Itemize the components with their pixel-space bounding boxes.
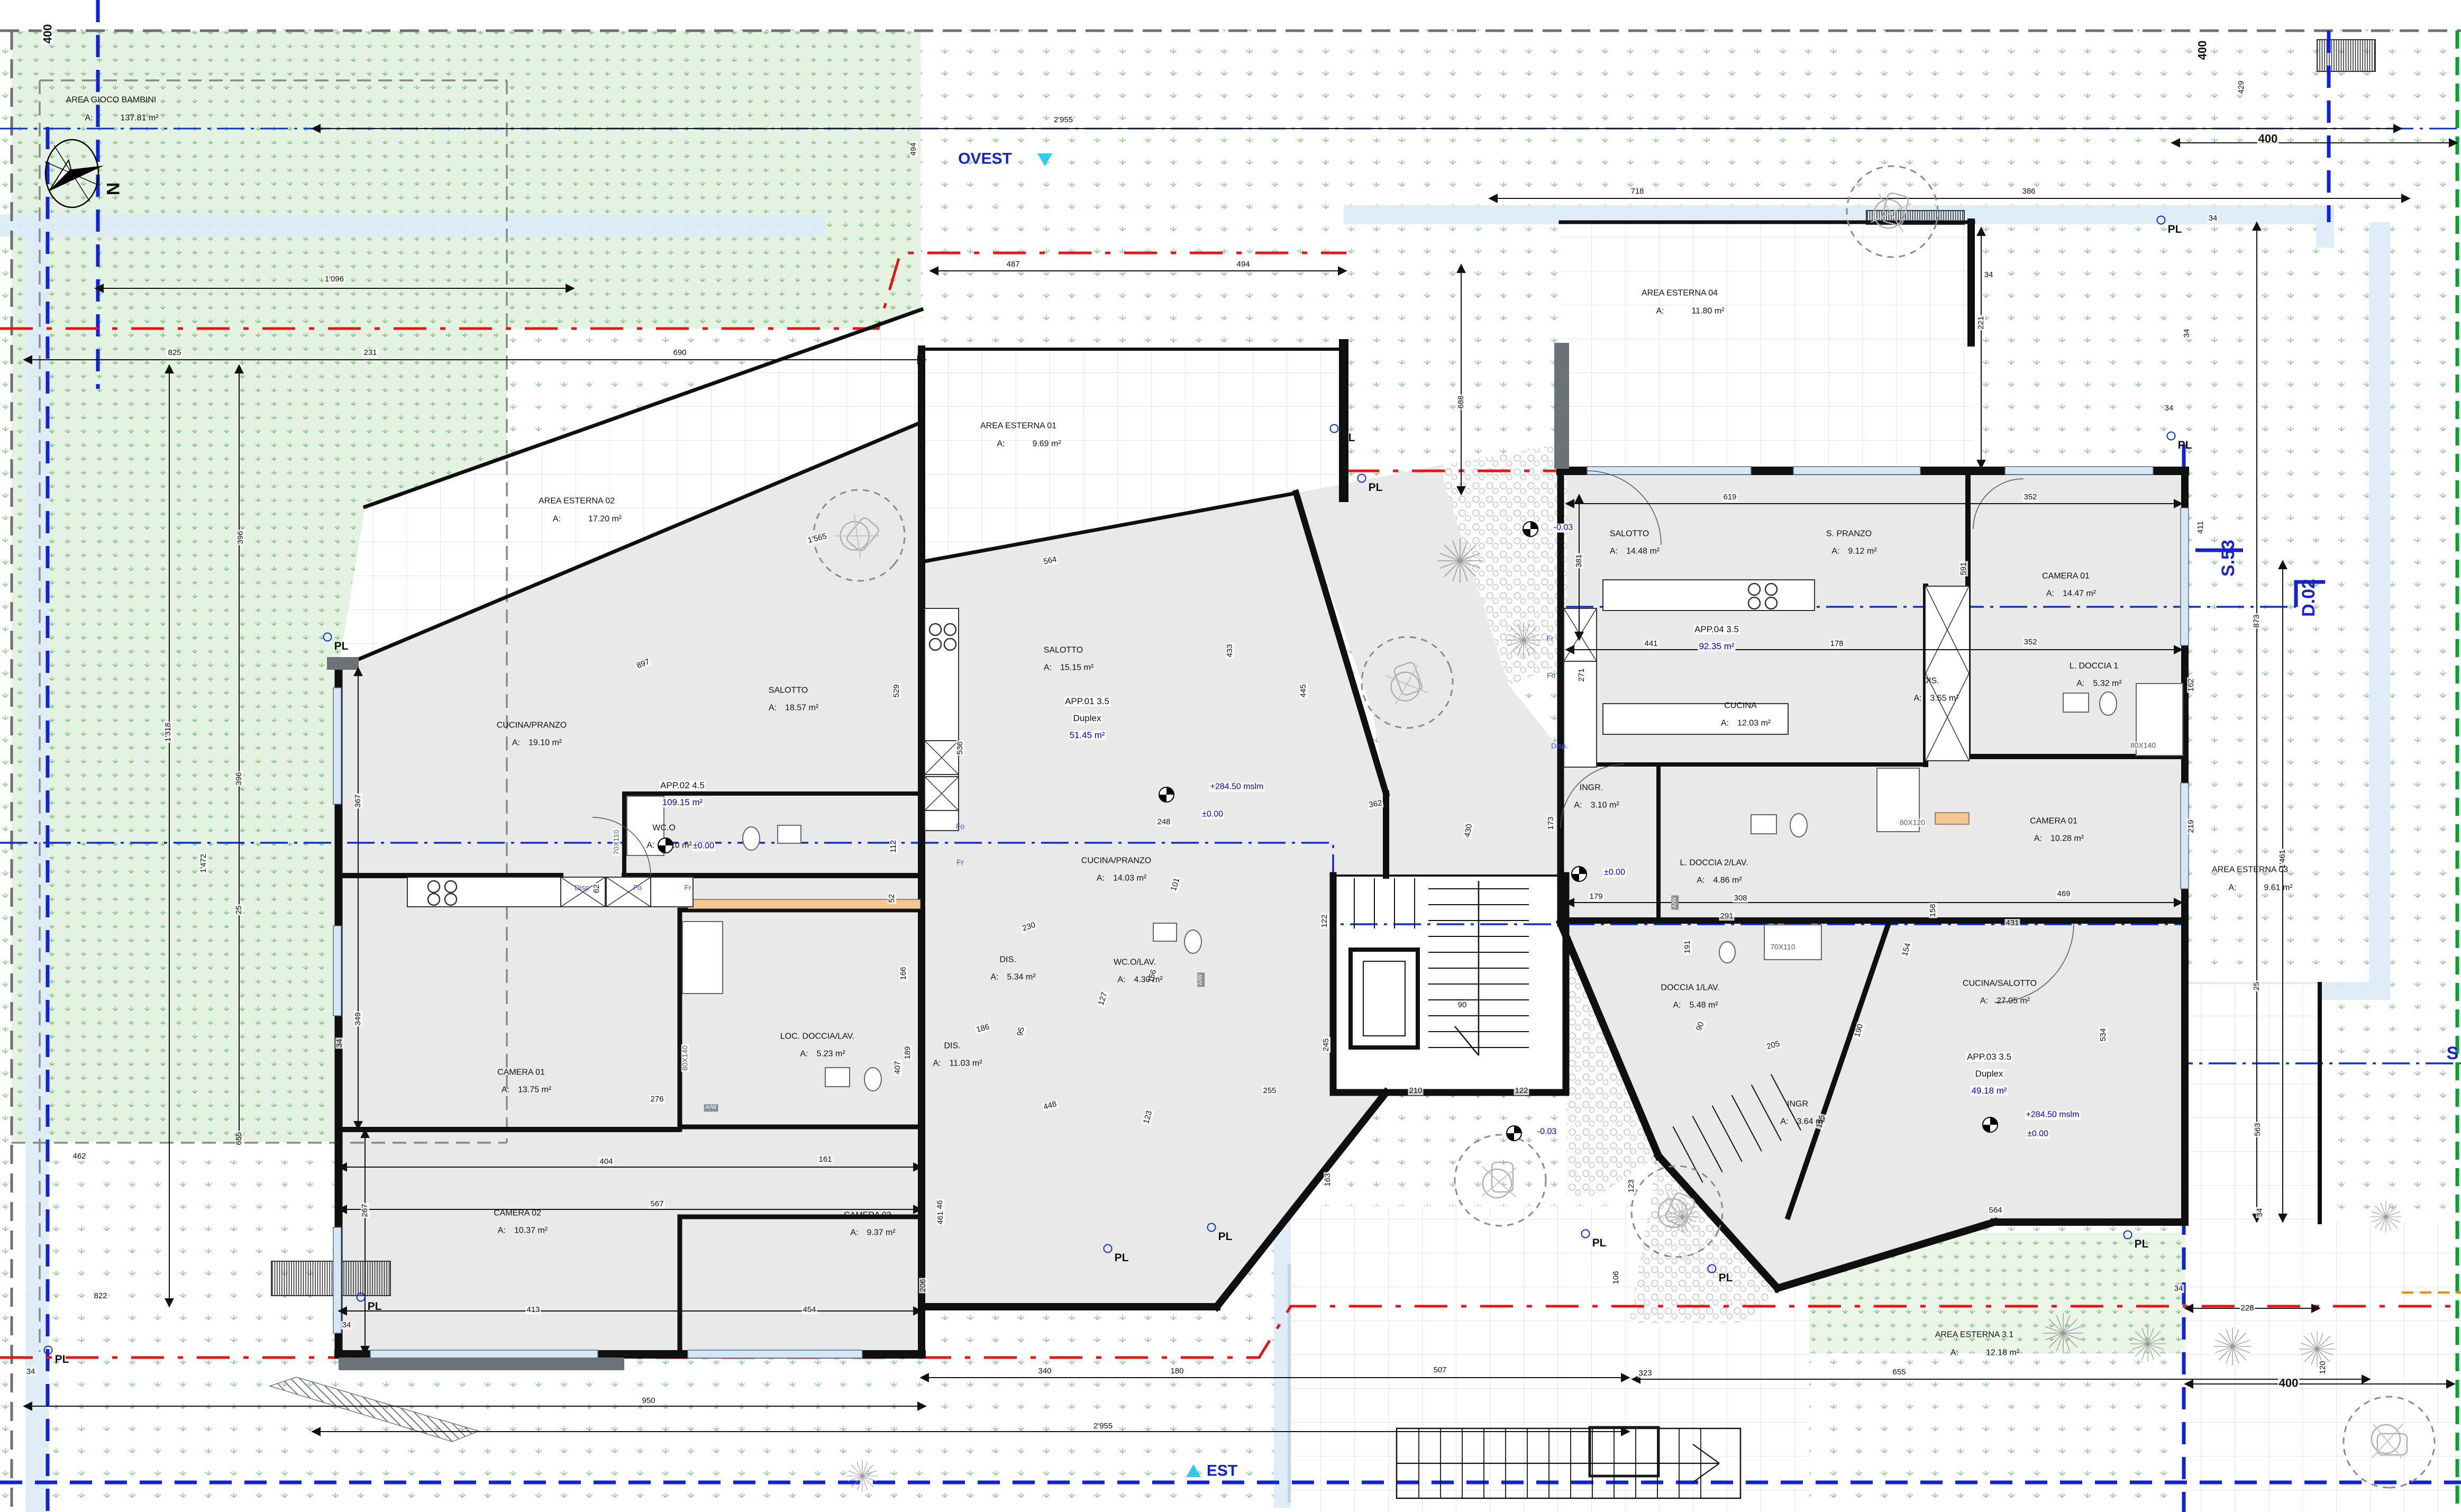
room-name: INGR.: [1579, 784, 1604, 793]
cardinal-east-label: EST: [1206, 1462, 1238, 1479]
room-area: A:5.34 m²: [989, 973, 1036, 982]
dim-label: 413: [525, 1306, 541, 1314]
dim-label: 178: [1829, 640, 1844, 648]
appliance-label: Disp.: [1550, 742, 1569, 750]
site-area-value: A:17.20 m²: [552, 515, 623, 524]
room-area: A:4.30 m²: [1116, 976, 1163, 985]
room-area: A:19.10 m²: [511, 739, 563, 748]
room-name: SALOTTO: [1609, 530, 1650, 539]
apartment-name: APP.02 4.5: [659, 781, 706, 790]
dim-label: 352: [2022, 638, 2038, 646]
apartment-type: Duplex: [1974, 1069, 2004, 1079]
dim-label: 619: [1722, 493, 1737, 502]
appliance-label: Fo: [1546, 672, 1556, 680]
dim-label: 563: [2254, 1122, 2262, 1137]
section-marker-label: S: [2446, 1044, 2460, 1063]
appliance-label: Fr: [683, 884, 692, 892]
dim-label: 255: [1262, 1087, 1277, 1095]
dim-label: 173: [1547, 815, 1555, 831]
dim-label: 323: [1637, 1369, 1653, 1378]
dim-label: 469: [2056, 890, 2071, 898]
property-line-marker: PL: [1368, 482, 1384, 494]
dim-label: 34: [25, 1368, 37, 1376]
level-symbol: [1506, 1125, 1522, 1141]
fixture-size-label: 80X120: [1899, 819, 1926, 827]
room-area: A:14.03 m²: [1096, 875, 1147, 883]
room-name: L. DOCCIA 2/LAV.: [1679, 859, 1749, 868]
fixture-size-label: 70X110: [1769, 943, 1796, 951]
dim-label: 340: [1037, 1367, 1052, 1376]
dim-label: 591: [1959, 561, 1968, 576]
dim-label: 529: [892, 683, 901, 698]
fixture-size-label: 70X110: [613, 828, 621, 855]
dim-label: 400: [2257, 132, 2279, 144]
site-area-value: A:12.18 m²: [1949, 1349, 2020, 1358]
property-line-point: [2167, 432, 2176, 441]
dim-label: 25: [235, 905, 243, 916]
dim-label: 718: [1629, 187, 1645, 196]
site-area-name: AREA ESTERNA 04: [1640, 289, 1719, 298]
dim-label: 221: [1977, 315, 1985, 330]
appliance-label: Fo: [955, 823, 965, 831]
room-name: DIS.: [1921, 677, 1940, 686]
property-line-point: [1207, 1223, 1216, 1232]
dim-label: 34: [2256, 1207, 2264, 1218]
room-name: CAMERA 03: [843, 1212, 892, 1220]
level-label: +284.50 mslm: [2025, 1111, 2081, 1120]
room-area: A:14.48 m²: [1609, 548, 1661, 557]
dim-label: 34: [2164, 404, 2175, 413]
dim-label: 1'318: [164, 722, 172, 743]
dim-label: 163: [1324, 1172, 1332, 1187]
room-name: LOC. DOCCIA/LAV.: [779, 1033, 856, 1042]
level-label: +284.50 mslm: [1209, 783, 1265, 792]
dim-label: 494: [909, 141, 918, 157]
site-area-name: AREA ESTERNA 02: [537, 497, 616, 506]
dim-label: 487: [1005, 260, 1020, 269]
dim-label: 112: [889, 839, 898, 854]
dim-label: 206: [919, 1278, 927, 1293]
dim-label: 433: [1226, 643, 1234, 658]
dim-label: 396: [235, 771, 243, 786]
dim-label: 352: [2022, 493, 2038, 502]
room-name: CUCINA/PRANZO: [1080, 857, 1152, 866]
apartment-area: 92.35 m²: [1698, 642, 1735, 651]
apartment-area: 51.45 m²: [1068, 731, 1106, 740]
room-name: DIS.: [998, 956, 1017, 965]
dim-label: 950: [641, 1397, 656, 1405]
room-name: SALOTTO: [768, 687, 809, 696]
cardinal-west-label: OVEST: [957, 150, 1013, 167]
washer-dryer-label: A/W: [704, 1104, 718, 1112]
room-name: S. PRANZO: [1825, 530, 1873, 539]
dim-label: 25: [2253, 981, 2261, 992]
dim-label: 191: [1683, 939, 1692, 954]
dim-label: 1'096: [324, 275, 345, 284]
property-line-point: [1708, 1264, 1717, 1273]
apartment-type: Duplex: [1072, 714, 1102, 723]
room-area: A:15.15 m²: [1043, 664, 1095, 673]
dim-label: 219: [2187, 818, 2195, 834]
room-name: CAMERA 02: [493, 1209, 542, 1218]
dim-label: 461: [936, 1210, 945, 1225]
dim-label: 2'955: [1092, 1422, 1114, 1431]
dim-label: 267: [361, 1203, 369, 1218]
room-name: CAMERA 01: [2041, 572, 2091, 581]
dim-label: 34: [1983, 271, 1994, 279]
dim-label: 179: [1588, 892, 1603, 901]
level-label: -0.03: [1536, 1128, 1557, 1137]
dim-label: 228: [2239, 1304, 2255, 1313]
dim-label: 120: [2319, 1360, 2327, 1375]
room-area: A:5.32 m²: [2075, 680, 2122, 689]
dim-label: 276: [649, 1095, 664, 1104]
fixture-size-label: 80X140: [681, 1044, 689, 1072]
washer-dryer-label: A/W: [1197, 973, 1205, 987]
dim-label: 690: [672, 349, 687, 357]
dim-label: 62: [593, 883, 601, 895]
appliance-label: Fo: [632, 884, 643, 892]
room-area: A:18.57 m²: [768, 704, 819, 713]
west-triangle-icon: [1037, 153, 1052, 166]
property-line-point: [2157, 216, 2166, 225]
section-marker-label: D.02: [2300, 578, 2319, 618]
dim-label: 46: [936, 1199, 944, 1210]
site-area-value: A:137.81 m²: [84, 114, 159, 123]
site-area-value: A:9.61 m²: [2227, 884, 2293, 893]
dim-label: 161: [817, 1155, 833, 1164]
dim-label: 507: [1432, 1366, 1447, 1374]
property-line-marker: PL: [1340, 432, 1356, 444]
level-symbol: [658, 837, 673, 853]
dim-label: 534: [2099, 1027, 2108, 1042]
room-area: A:5.23 m²: [799, 1050, 846, 1059]
room-name: CAMERA 01: [2029, 817, 2079, 826]
dim-label: 825: [167, 349, 182, 357]
site-area-name: AREA ESTERNA 3.1: [1934, 1331, 2015, 1340]
room-name: SALOTTO: [1043, 646, 1084, 655]
dim-label: 106: [1612, 1270, 1620, 1285]
dim-label: 90: [1457, 1001, 1468, 1009]
dim-label: 429: [2237, 79, 2246, 95]
property-line-marker: PL: [2134, 1238, 2150, 1250]
dim-label: 291: [1719, 912, 1734, 921]
room-area: A:3.55 m²: [1912, 695, 1959, 704]
property-line-point: [357, 1293, 366, 1302]
east-triangle-icon: [1186, 1464, 1201, 1477]
room-name: CUCINA: [1723, 702, 1757, 711]
property-line-marker: PL: [2167, 224, 2183, 235]
dim-label: 248: [1156, 818, 1171, 826]
appliance-label: Fr: [955, 859, 964, 867]
property-line-point: [1357, 474, 1366, 483]
washer-dryer-label: A/W: [1671, 896, 1679, 910]
dim-label: 400: [41, 23, 53, 45]
dim-label: 411: [2196, 520, 2205, 535]
room-area: A:3.64 m²: [1779, 1118, 1826, 1127]
floor-plan-drawing: [0, 0, 2461, 1512]
fixture-size-label: 80X140: [2129, 742, 2157, 750]
property-line-marker: PL: [1114, 1252, 1130, 1264]
property-line-marker: PL: [1217, 1231, 1234, 1243]
dim-label: 400: [2196, 40, 2208, 61]
room-name: CAMERA 01: [496, 1069, 546, 1078]
dim-label: 396: [236, 530, 245, 545]
site-area-value: A:9.69 m²: [996, 440, 1062, 449]
level-label: ±0.00: [1603, 869, 1626, 878]
room-area: A:9.12 m²: [1830, 548, 1877, 557]
dim-label: 271: [1578, 667, 1586, 682]
site-area-name: AREA ESTERNA 01: [979, 422, 1058, 431]
property-line-point: [1581, 1229, 1590, 1238]
dim-label: 367: [354, 793, 362, 808]
room-area: A:14.47 m²: [2045, 590, 2097, 599]
dim-label: 210: [1408, 1087, 1423, 1095]
apartment-area: 109.15 m²: [661, 798, 704, 807]
room-area: A:12.03 m²: [1720, 719, 1772, 728]
property-line-marker: PL: [1591, 1237, 1608, 1249]
dim-label: 822: [93, 1292, 108, 1300]
level-label: -0.03: [1553, 524, 1574, 533]
room-name: DOCCIA 1/LAV.: [1660, 984, 1720, 993]
dim-label: 122: [1320, 913, 1329, 928]
dim-label: 431: [2004, 919, 2020, 927]
property-line-marker: PL: [1718, 1272, 1734, 1284]
apartment-area: 49.18 m²: [1970, 1086, 2008, 1096]
room-area: A:9.37 m²: [849, 1229, 896, 1238]
dim-label: 454: [801, 1306, 817, 1314]
dim-label: 34: [341, 1321, 352, 1329]
level-symbol: [1571, 866, 1587, 882]
dim-label: 536: [956, 740, 964, 755]
level-symbol: [1523, 521, 1538, 537]
property-line-marker: PL: [367, 1301, 383, 1313]
room-name: L. DOCCIA 1: [2068, 662, 2119, 671]
room-area: A:10.28 m²: [2033, 835, 2085, 844]
dim-label: 494: [1235, 260, 1251, 269]
dim-label: 308: [1733, 894, 1748, 903]
dim-label: 655: [1891, 1368, 1907, 1377]
dim-label: 407: [894, 1060, 902, 1075]
dim-label: 349: [354, 1011, 362, 1026]
level-symbol: [1159, 787, 1174, 803]
room-area: A:13.75 m²: [500, 1086, 552, 1095]
dim-label: 445: [1299, 683, 1308, 698]
dim-label: 1'472: [199, 853, 208, 874]
dim-label: 52: [888, 893, 896, 904]
compass-north-label: N: [103, 181, 122, 197]
dim-label: 34: [2208, 214, 2219, 223]
floor-plan-canvas: OVEST EST N const data = JSON.parse(docu…: [0, 0, 2461, 1512]
dim-label: 564: [1988, 1206, 2003, 1215]
room-name: WC.O/LAV.: [1113, 959, 1157, 968]
dim-label: 189: [904, 1045, 912, 1060]
room-area: A:10.37 m²: [497, 1227, 549, 1236]
site-area-name: AREA ESTERNA 03: [2211, 866, 2289, 875]
room-area: A:3.10 m²: [1573, 801, 1620, 810]
dim-label: 462: [71, 1152, 87, 1161]
appliance-label: Fr: [1545, 635, 1554, 643]
appliance-label: Disp: [573, 884, 590, 892]
dim-label: 2'955: [1053, 116, 1074, 124]
property-line-point: [44, 1346, 53, 1355]
property-line-point: [323, 633, 332, 642]
level-label: ±0.00: [2026, 1130, 2049, 1139]
room-area: A:27.05 m²: [1979, 997, 2031, 1006]
dim-label: 34: [335, 1038, 344, 1049]
property-line-point: [1330, 424, 1339, 433]
apartment-name: APP.03 3.5: [1966, 1052, 2012, 1062]
property-line-point: [1104, 1244, 1113, 1253]
level-symbol: [1982, 1117, 1998, 1133]
site-area-value: A:11.80 m²: [1655, 307, 1725, 316]
apartment-name: APP.04 3.5: [1693, 625, 1740, 634]
dim-label: 180: [1169, 1367, 1184, 1376]
room-area: A:4.86 m²: [1696, 877, 1743, 886]
property-line-marker: PL: [54, 1354, 70, 1365]
dim-label: 688: [1457, 394, 1465, 409]
dim-label: 873: [2253, 613, 2261, 629]
dim-label: 166: [899, 966, 908, 981]
property-line-marker: PL: [2177, 440, 2193, 451]
dim-label: 34: [2173, 1285, 2184, 1293]
property-line-point: [2123, 1231, 2132, 1240]
dim-label: 655: [235, 1131, 243, 1146]
dim-label: 123: [1627, 1178, 1636, 1194]
room-name: CUCINA/SALOTTO: [1962, 980, 2038, 989]
site-area-name: AREA GIOCO BAMBINI: [65, 96, 158, 105]
dim-label: 158: [1929, 903, 1937, 918]
dim-label: 162: [2187, 677, 2195, 693]
room-name: WC.O: [651, 824, 677, 833]
apartment-name: APP.01 3.5: [1064, 697, 1110, 706]
dim-label: 404: [598, 1158, 614, 1166]
dim-label: 386: [2021, 187, 2036, 196]
dim-label: 567: [649, 1200, 664, 1208]
room-name: INGR: [1786, 1100, 1809, 1109]
section-marker-label: S.53: [2219, 539, 2238, 578]
dim-label: 34: [2183, 328, 2191, 339]
dim-label: 400: [2278, 1377, 2300, 1389]
room-name: CUCINA/PRANZO: [496, 722, 568, 731]
dim-label: 245: [1322, 1037, 1330, 1052]
room-name: DIS.: [943, 1042, 961, 1051]
room-area: A:11.03 m²: [932, 1060, 983, 1069]
level-label: ±0.00: [1201, 810, 1224, 819]
room-area: A:5.48 m²: [1672, 1001, 1719, 1010]
dim-label: 381: [1575, 553, 1583, 568]
dim-label: 231: [362, 349, 378, 357]
level-label: ±0.00: [692, 842, 715, 851]
property-line-marker: PL: [333, 641, 350, 652]
dim-label: 441: [1643, 640, 1658, 648]
dim-label: 122: [1514, 1087, 1529, 1095]
